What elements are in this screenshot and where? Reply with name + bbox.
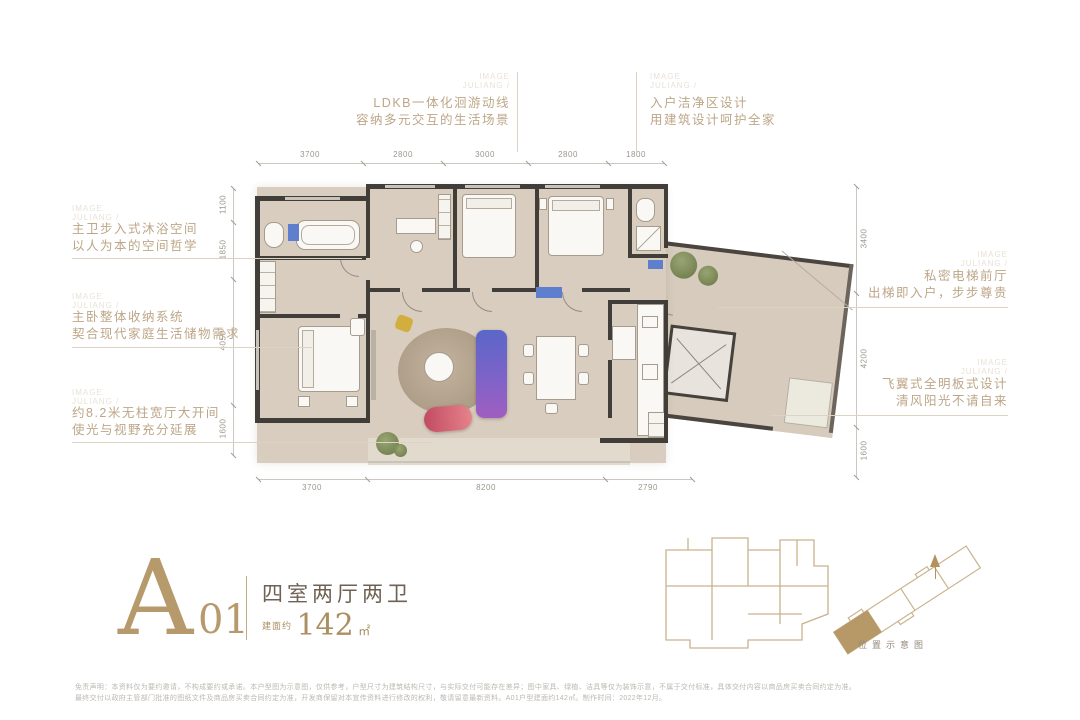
callout-line: 私密电梯前厅 <box>800 268 1008 285</box>
door-gap <box>400 288 422 292</box>
dining-table <box>536 336 576 400</box>
bath-mat <box>648 260 663 269</box>
desk-chair <box>410 240 423 253</box>
entry-steps <box>648 412 665 438</box>
dining-chair <box>578 372 589 385</box>
watermark-line: JULIANG / <box>850 367 1008 376</box>
unit-letter: A <box>118 548 193 648</box>
toilet <box>264 222 284 248</box>
window <box>285 197 340 200</box>
dining-chair <box>523 372 534 385</box>
callout-line: 入户洁净区设计 <box>650 95 860 112</box>
dimension-label: 3700 <box>290 150 330 159</box>
unit-layout-text: 四室两厅两卫 <box>262 578 412 608</box>
kitchen-sink <box>642 316 658 328</box>
callout-line: 容纳多元交互的生活场景 <box>310 112 510 129</box>
watermark: IMAGE JULIANG / <box>850 358 1008 376</box>
floorplan-page: 3700 2800 3000 2800 1800 3700 8200 2790 … <box>0 0 1080 720</box>
watermark-line: IMAGE <box>650 72 820 81</box>
callout-line: 出梯即入户，步步尊贵 <box>800 285 1008 302</box>
compass-tail <box>935 567 936 579</box>
balcony-plant-icon <box>394 444 407 457</box>
dining-chair <box>578 344 589 357</box>
door-gap <box>366 258 370 280</box>
unit-area: 建面约 142 ㎡ <box>262 608 370 643</box>
watermark-line: JULIANG / <box>340 81 510 90</box>
callout-leader <box>72 442 432 443</box>
dimension-label: 8200 <box>466 483 506 492</box>
sofa <box>476 330 507 418</box>
watermark-line: IMAGE <box>72 292 222 301</box>
door-gap <box>560 288 582 292</box>
dimension-label: 2800 <box>383 150 423 159</box>
dimension-label: 3700 <box>292 483 332 492</box>
watermark-line: IMAGE <box>850 250 1008 259</box>
disclaimer-line: 最终交付以政府主管部门批准的图纸文件及商品房买卖合同约定为准，开发商保留对本宣传… <box>75 693 1015 703</box>
dimension-label: 2800 <box>548 150 588 159</box>
callout-top-right: 入户洁净区设计 用建筑设计呵护全家 <box>650 95 860 129</box>
wall-segment <box>608 300 668 304</box>
wall-segment <box>255 418 370 423</box>
watermark: IMAGE JULIANG / <box>850 250 1008 268</box>
callout-line: LDKB一体化洄游动线 <box>310 95 510 112</box>
wardrobe <box>258 261 276 313</box>
dimension-line-top <box>258 163 664 164</box>
callout-right-2: 飞翼式全明板式设计 清风阳光不请自来 <box>800 376 1008 410</box>
callout-line: 飞翼式全明板式设计 <box>800 376 1008 393</box>
shower <box>636 226 661 251</box>
callout-line: 契合现代家庭生活储物需求 <box>72 326 272 343</box>
door-gap <box>340 314 358 318</box>
coffee-table <box>424 352 454 382</box>
bed <box>462 194 516 258</box>
disclaimer-line: 免责声明：本资料仅为要约邀请，不构成要约或承诺。本户型图为示意图，仅供参考，户型… <box>75 682 1015 692</box>
toilet <box>636 198 655 222</box>
area-prefix: 建面约 <box>262 621 292 631</box>
callout-leader <box>770 415 1008 416</box>
compass-needle <box>930 554 940 567</box>
wall-segment <box>600 438 668 443</box>
nightstand <box>606 198 614 210</box>
watermark-line: JULIANG / <box>650 81 820 90</box>
callout-leader <box>517 72 518 152</box>
dimension-line-bottom <box>258 479 692 480</box>
nightstand <box>346 396 358 407</box>
callout-leader <box>72 258 362 259</box>
keyplan-caption: 位置示意图 <box>858 638 928 651</box>
watermark: IMAGE JULIANG / <box>72 388 222 406</box>
island-cabinet <box>536 287 562 298</box>
dimension-line-right <box>856 186 857 478</box>
callout-line: 使光与视野充分延展 <box>72 422 272 439</box>
wall-segment <box>628 184 632 258</box>
armchair <box>350 318 365 336</box>
wall-segment <box>366 184 370 420</box>
callout-left-2: 主卧整体收纳系统 契合现代家庭生活储物需求 <box>72 309 272 343</box>
watermark: IMAGE JULIANG / <box>340 72 510 90</box>
watermark: IMAGE JULIANG / <box>72 292 222 310</box>
elevator-cross-line <box>671 344 727 383</box>
shoe-cabinet <box>612 326 636 360</box>
wall-segment <box>630 254 668 258</box>
master-bed <box>298 326 360 392</box>
callout-right-1: 私密电梯前厅 出梯即入户，步步尊贵 <box>800 268 1008 302</box>
watermark-line: IMAGE <box>850 358 1008 367</box>
wall-segment <box>453 184 457 292</box>
callout-line: 约8.2米无柱宽厅大开间 <box>72 405 272 422</box>
nightstand <box>539 198 547 210</box>
window <box>465 185 520 188</box>
compass-icon <box>930 554 940 579</box>
watermark-line: IMAGE <box>72 204 222 213</box>
dimension-label: 3000 <box>465 150 505 159</box>
bathtub <box>296 220 360 250</box>
bed <box>548 196 604 256</box>
dining-chair <box>545 403 558 414</box>
kitchen-stove <box>642 364 658 380</box>
callout-leader <box>636 72 637 152</box>
callout-line: 以人为本的空间哲学 <box>72 238 262 255</box>
title-divider <box>246 576 247 640</box>
elevator-shaft <box>662 325 736 403</box>
wall-segment <box>664 184 668 248</box>
callout-line: 主卧整体收纳系统 <box>72 309 272 326</box>
bath-mat <box>288 224 299 241</box>
watermark-line: JULIANG / <box>850 259 1008 268</box>
desk <box>396 218 436 234</box>
door-gap <box>608 340 612 360</box>
unit-key-plan <box>652 522 842 652</box>
nightstand <box>298 396 310 407</box>
callout-leader <box>718 307 1008 308</box>
door-gap <box>470 288 492 292</box>
callout-line: 用建筑设计呵护全家 <box>650 112 860 129</box>
area-unit: ㎡ <box>358 624 370 638</box>
wall-segment <box>535 184 539 292</box>
callout-left-1: 主卫步入式沐浴空间 以人为本的空间哲学 <box>72 221 262 255</box>
dimension-label: 1600 <box>860 431 869 471</box>
callout-line: 主卫步入式沐浴空间 <box>72 221 262 238</box>
wall-segment <box>664 300 668 440</box>
balcony-glass <box>368 461 630 463</box>
dining-chair <box>523 344 534 357</box>
tv-console <box>371 330 376 400</box>
bookshelf <box>438 194 451 240</box>
watermark-line: IMAGE <box>340 72 510 81</box>
window <box>545 185 600 188</box>
watermark: IMAGE JULIANG / <box>72 204 222 222</box>
callout-left-3: 约8.2米无柱宽厅大开间 使光与视野充分延展 <box>72 405 272 439</box>
dimension-label: 2790 <box>628 483 668 492</box>
callout-top-left: LDKB一体化洄游动线 容纳多元交互的生活场景 <box>310 95 510 129</box>
callout-line: 清风阳光不请自来 <box>800 393 1008 410</box>
area-value: 142 <box>296 608 353 643</box>
watermark-line: IMAGE <box>72 388 222 397</box>
watermark: IMAGE JULIANG / <box>650 72 820 90</box>
callout-leader <box>72 347 312 348</box>
window <box>385 185 435 188</box>
unit-number: 01 <box>198 600 249 640</box>
